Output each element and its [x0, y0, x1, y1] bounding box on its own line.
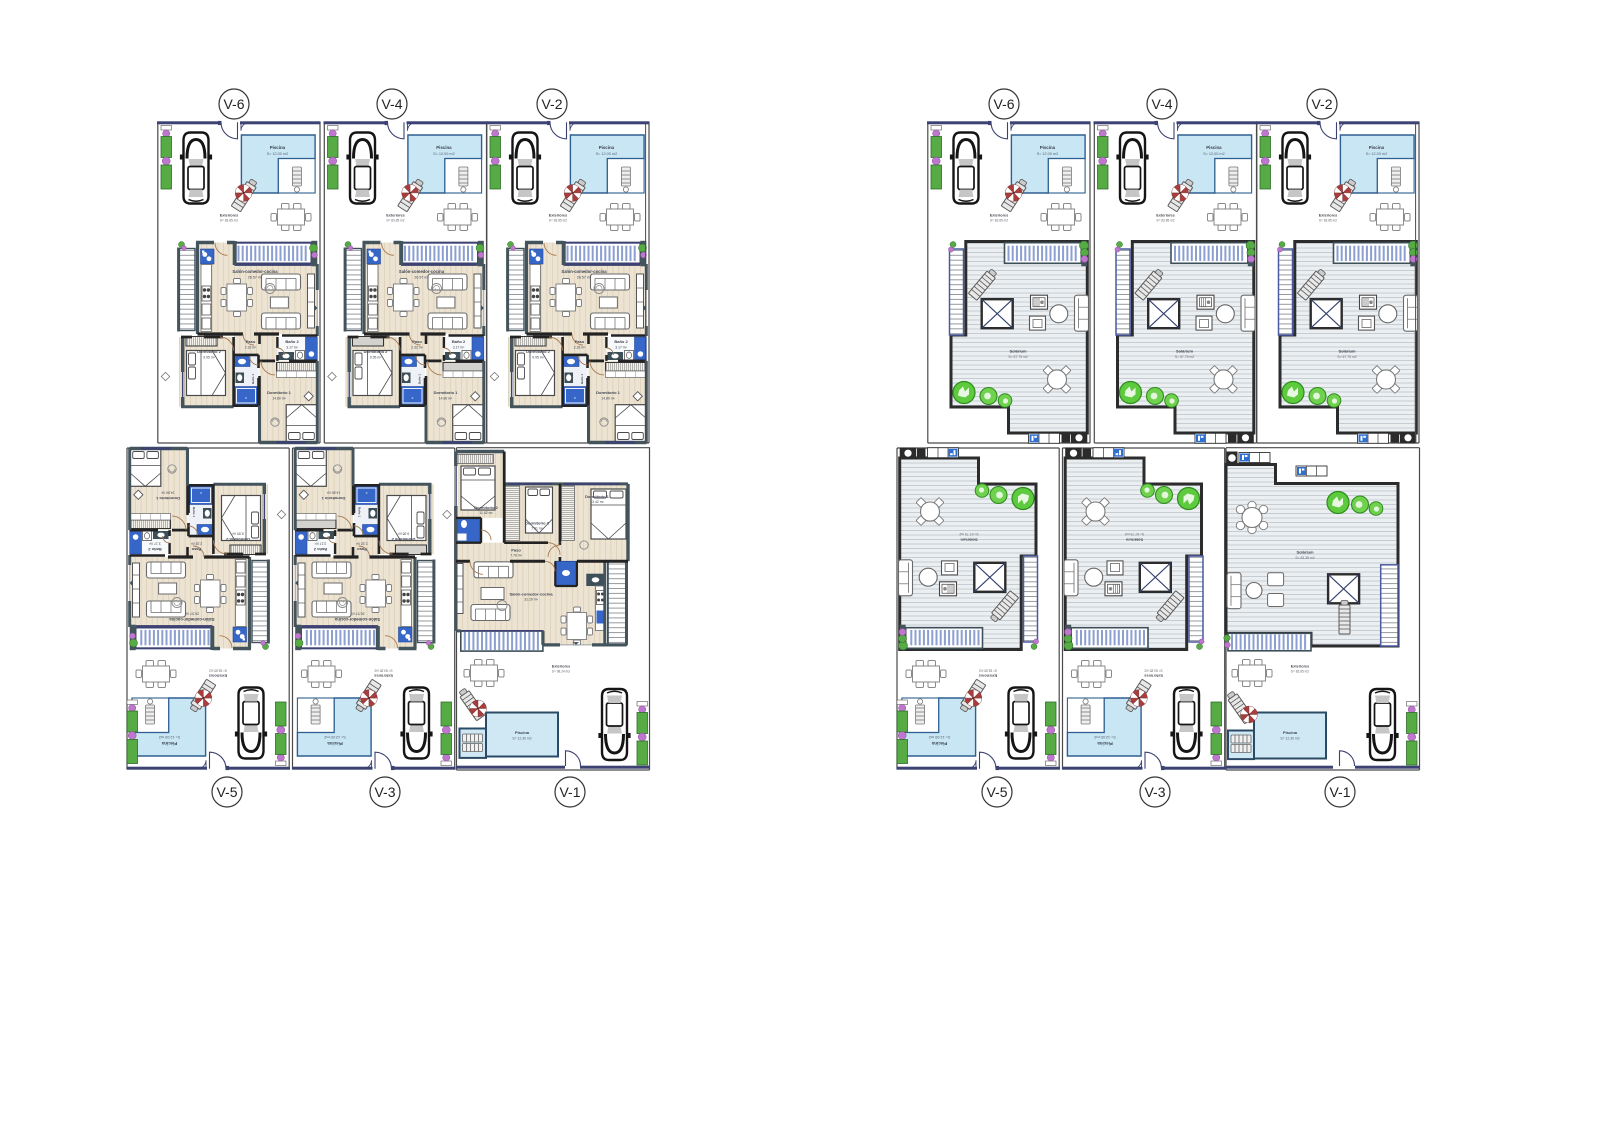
- svg-text:V-1: V-1: [1329, 784, 1350, 800]
- svg-text:V-6: V-6: [993, 96, 1014, 112]
- svg-text:V-4: V-4: [381, 96, 402, 112]
- svg-text:V-3: V-3: [374, 784, 395, 800]
- svg-text:V-1: V-1: [559, 784, 580, 800]
- svg-text:V-5: V-5: [986, 784, 1007, 800]
- svg-text:V-5: V-5: [216, 784, 237, 800]
- svg-text:V-6: V-6: [223, 96, 244, 112]
- svg-text:V-3: V-3: [1144, 784, 1165, 800]
- svg-text:V-4: V-4: [1151, 96, 1172, 112]
- svg-text:V-2: V-2: [1311, 96, 1332, 112]
- svg-text:V-2: V-2: [541, 96, 562, 112]
